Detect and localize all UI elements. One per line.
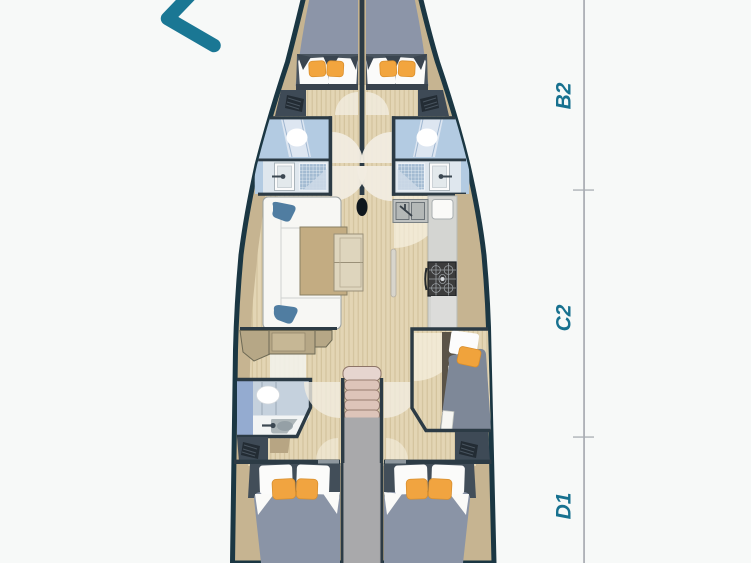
svg-text:D1: D1: [553, 493, 576, 520]
svg-text:C2: C2: [553, 304, 576, 331]
svg-text:B2: B2: [553, 82, 576, 109]
